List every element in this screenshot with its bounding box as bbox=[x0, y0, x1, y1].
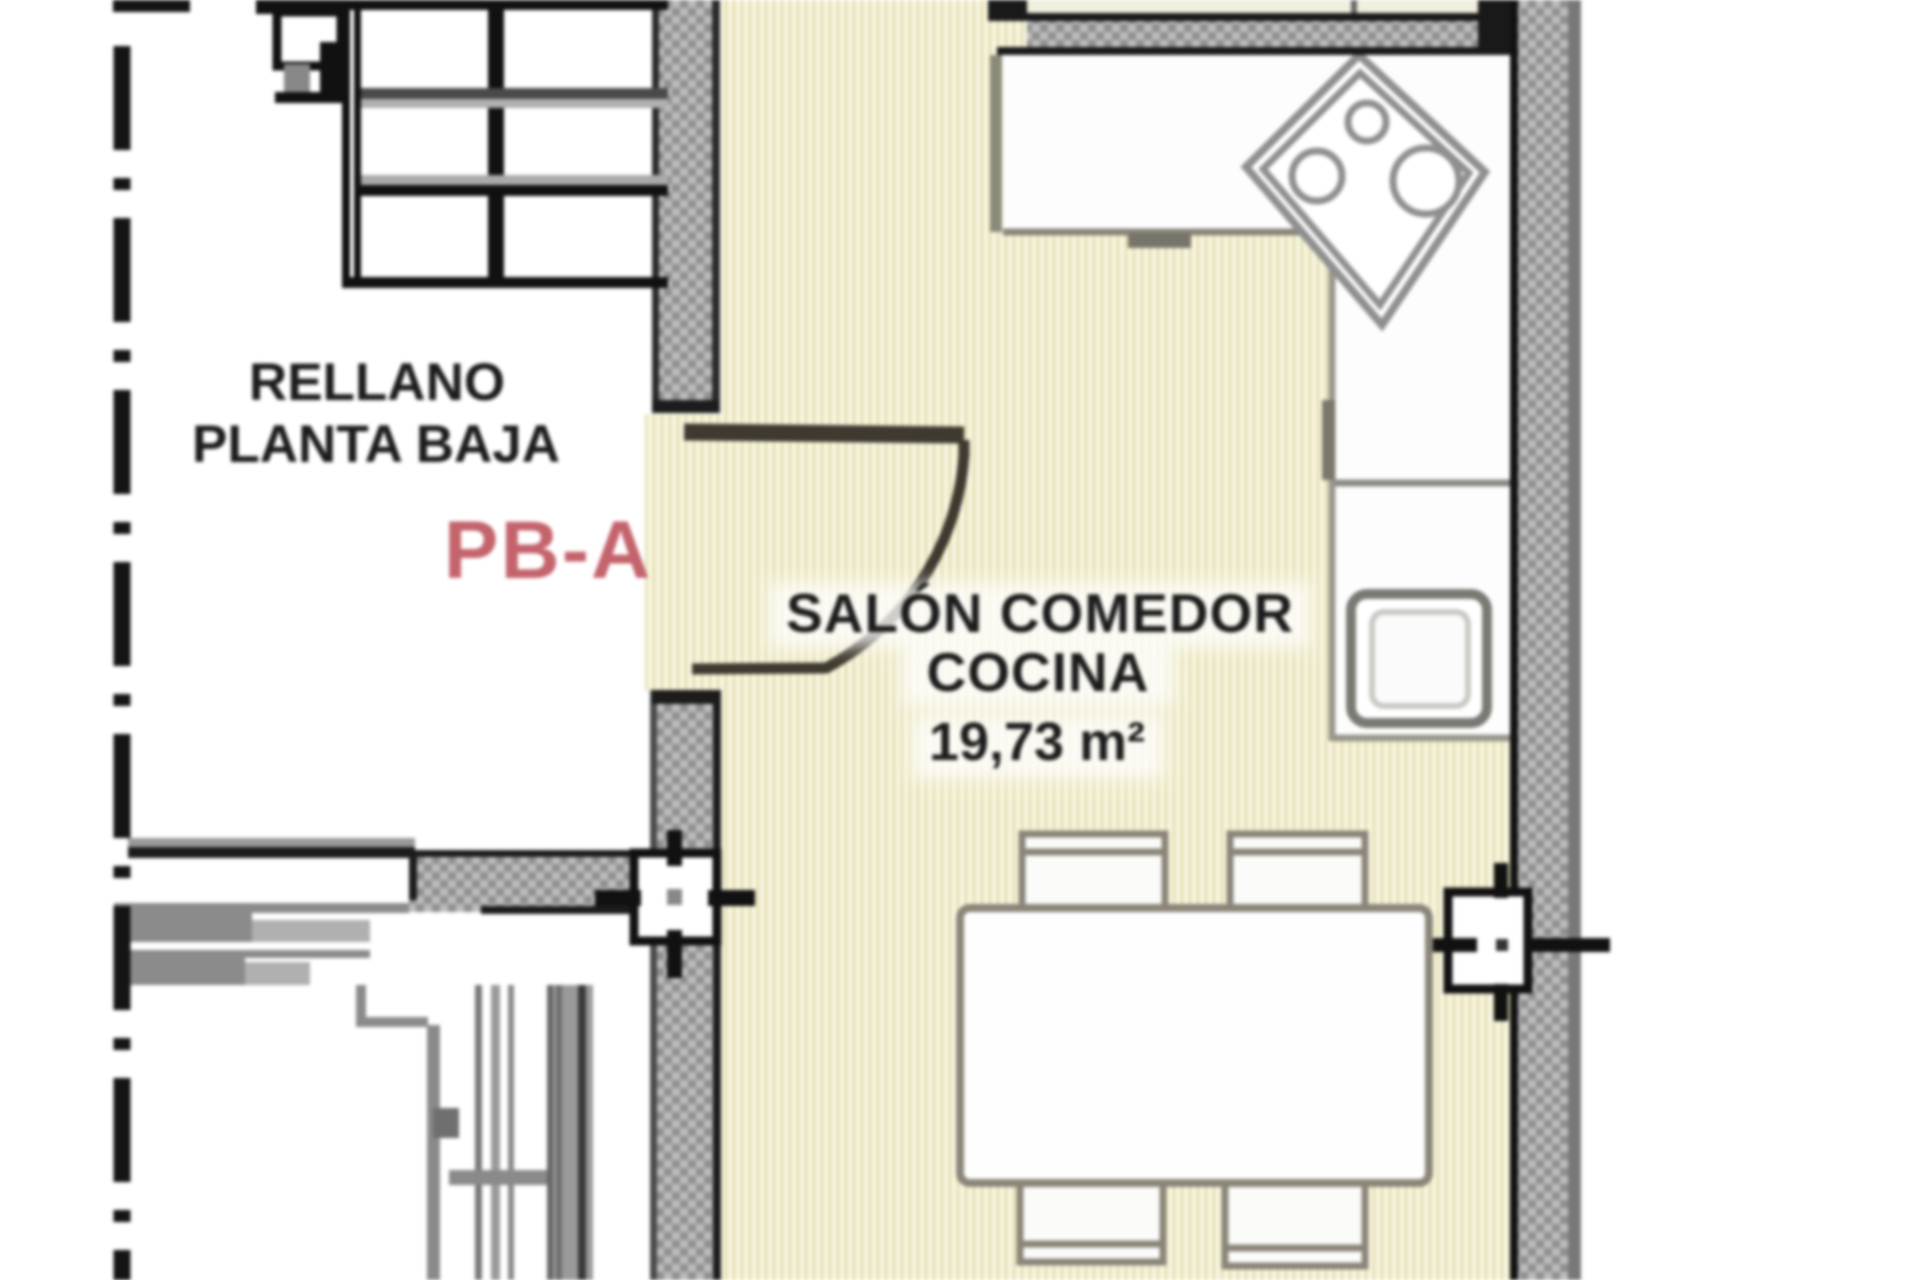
svg-text:COCINA: COCINA bbox=[927, 641, 1150, 703]
svg-text:SALÓN COMEDOR: SALÓN COMEDOR bbox=[786, 582, 1294, 644]
svg-text:PB-A: PB-A bbox=[444, 505, 652, 596]
svg-text:RELLANO: RELLANO bbox=[249, 353, 505, 412]
svg-text:19,73 m²: 19,73 m² bbox=[929, 712, 1145, 772]
svg-text:PLANTA BAJA: PLANTA BAJA bbox=[192, 415, 560, 474]
